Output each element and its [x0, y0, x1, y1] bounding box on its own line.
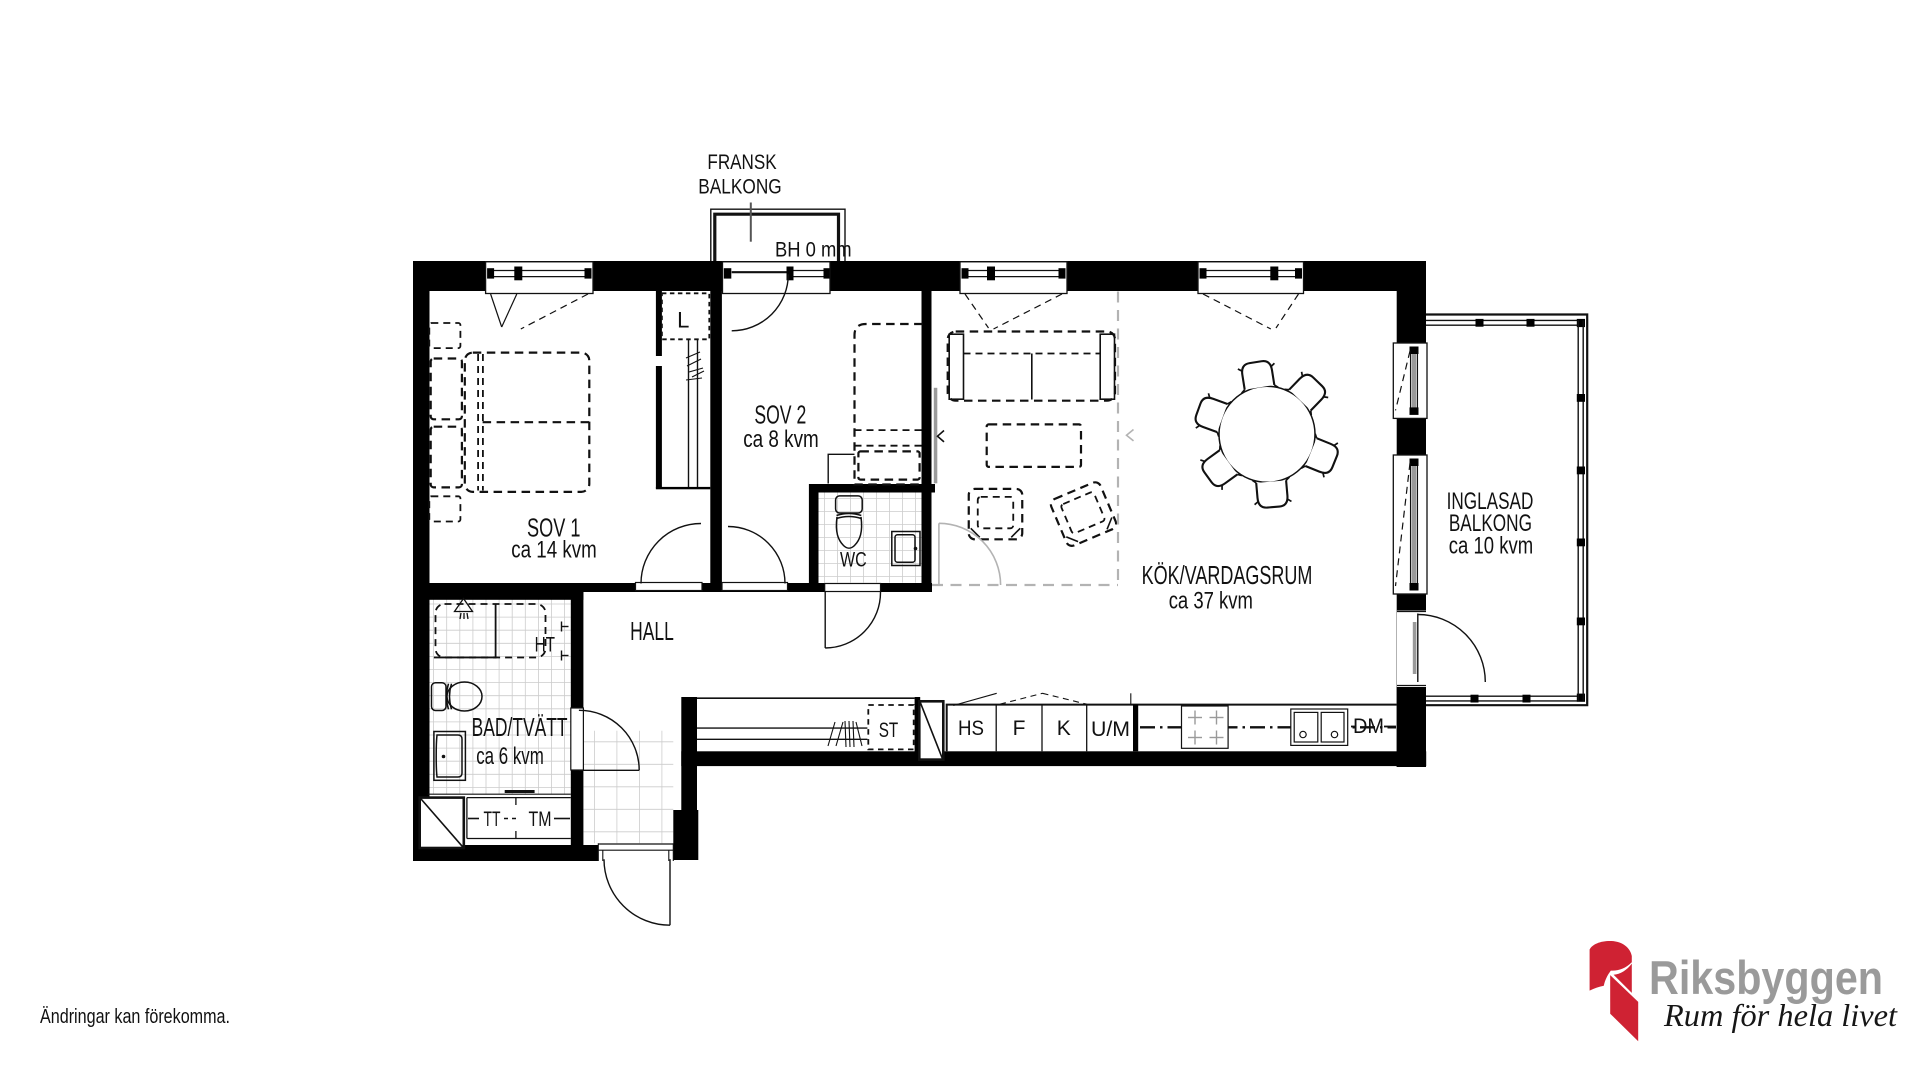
svg-text:KÖK/VARDAGSRUM: KÖK/VARDAGSRUM: [1142, 560, 1313, 590]
svg-text:HALL: HALL: [630, 616, 674, 646]
svg-text:ca 10 kvm: ca 10 kvm: [1449, 532, 1533, 559]
svg-text:SOV 2: SOV 2: [754, 399, 806, 429]
svg-text:TT: TT: [484, 808, 501, 831]
svg-text:BALKONG: BALKONG: [698, 175, 781, 198]
svg-text:BH 0 mm: BH 0 mm: [775, 239, 852, 262]
svg-text:L: L: [677, 307, 689, 332]
svg-text:HT: HT: [535, 633, 556, 656]
svg-text:ca 37 kvm: ca 37 kvm: [1169, 587, 1253, 614]
svg-text:WC: WC: [840, 548, 867, 571]
svg-text:FRANSK: FRANSK: [707, 151, 776, 174]
svg-text:TM: TM: [529, 808, 552, 831]
svg-text:HS: HS: [958, 717, 984, 740]
svg-text:ST: ST: [879, 719, 899, 742]
svg-text:ca 8 kvm: ca 8 kvm: [743, 426, 819, 453]
svg-text:U/M: U/M: [1091, 718, 1130, 741]
svg-text:BAD/TVÄTT: BAD/TVÄTT: [472, 712, 568, 742]
svg-text:K: K: [1057, 717, 1071, 740]
svg-text:F: F: [1013, 717, 1026, 740]
svg-text:ca 14 kvm: ca 14 kvm: [511, 537, 596, 564]
svg-text:ca 6 kvm: ca 6 kvm: [476, 743, 544, 770]
svg-text:Rum för hela livet: Rum för hela livet: [1663, 997, 1898, 1033]
svg-text:Ändringar kan förekomma.: Ändringar kan förekomma.: [40, 1006, 230, 1028]
svg-text:DM: DM: [1353, 715, 1384, 738]
